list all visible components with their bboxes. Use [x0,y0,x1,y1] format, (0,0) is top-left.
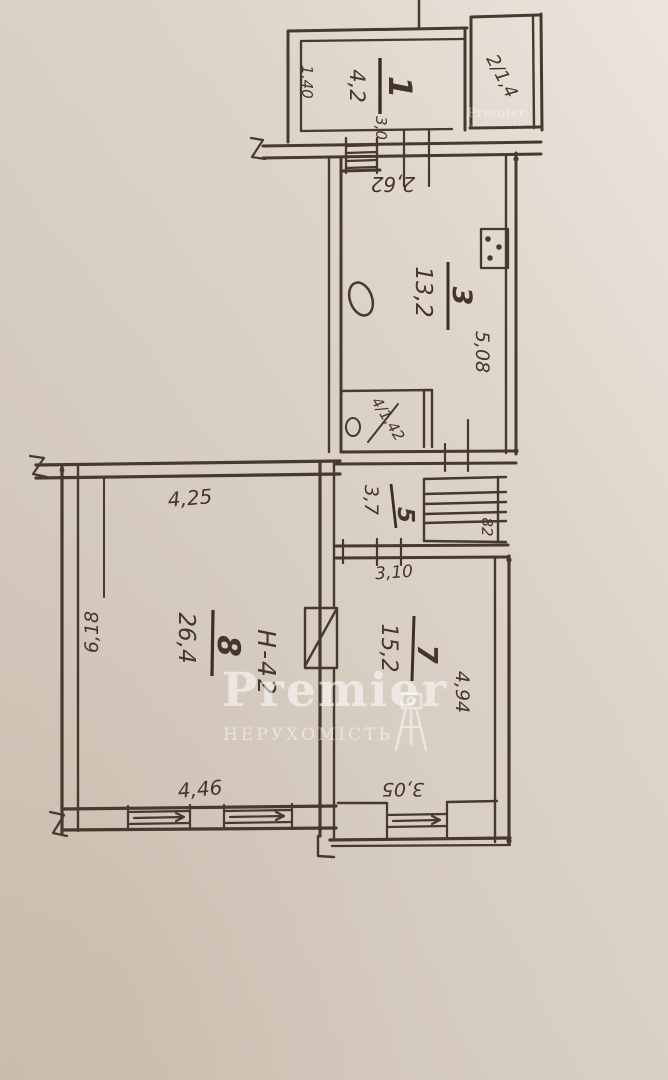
room8-width-bottom-dim: 4,46 [177,775,223,803]
room7-width-dim: 3,05 [382,778,424,800]
room8-width-top-dim: 4,25 [167,484,213,512]
room8-number: 8 [210,635,246,657]
kitchen-width-dim: 2,62 [371,172,416,196]
hall-area: 3,7 [360,485,382,515]
hall-number: 5 [392,507,418,523]
room1-depth-dim: 1,40 [298,65,316,98]
kitchen-number: 3 [446,287,477,306]
room1-width-dim: 3,0 [372,116,390,140]
kitchen-area: 13,2 [410,266,436,317]
small-watermark-brand: Premier [467,106,526,121]
watermark-brand: Premier [222,663,448,718]
room1-area: 4,2 [345,69,369,102]
kitchen-length-dim: 5,08 [471,331,493,373]
closet-label: 82 [478,517,496,536]
hall-width-dim: 3,10 [374,562,413,585]
floorplan-photo: 4,2 1 1,40 3,0 2/1,4 Premier НЕРУХОМІСТЬ [0,0,668,1080]
floorplan-sketch: 4,2 1 1,40 3,0 2/1,4 Premier НЕРУХОМІСТЬ [0,0,668,1080]
room8-length-dim: 6,18 [81,611,103,653]
watermark-subtitle: НЕРУХОМІСТЬ [223,725,393,745]
small-watermark: Premier НЕРУХОМІСТЬ [467,106,526,129]
room7-length-dim: 4,94 [451,671,473,713]
small-watermark-subtitle: НЕРУХОМІСТЬ [470,123,521,129]
room1-number: 1 [381,76,419,98]
room8-area: 26,4 [173,612,199,663]
room7-number: 7 [411,644,444,664]
